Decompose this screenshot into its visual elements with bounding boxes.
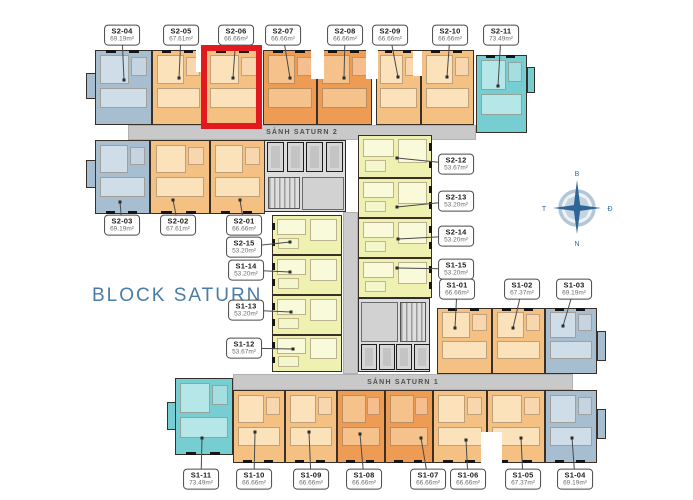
balcony-wall-tick [522, 460, 532, 463]
bathroom-outline [130, 147, 145, 166]
unit-S1-08[interactable] [337, 390, 385, 463]
balcony-wall-tick [429, 242, 432, 249]
balcony-wall-tick [264, 460, 273, 463]
bathroom-outline [455, 57, 469, 76]
bathroom-outline [278, 278, 298, 289]
room-outline [277, 219, 306, 236]
elevator-shaft [379, 344, 395, 370]
unit-area: 69.19m² [110, 36, 134, 44]
unit-area: 69.19m² [562, 290, 586, 298]
room-outline [180, 417, 227, 438]
unit-S1-12[interactable] [272, 335, 342, 372]
unit-area: 53.20m² [444, 270, 468, 278]
unit-code: S2-06 [224, 27, 248, 36]
room-outline [310, 259, 337, 281]
balcony-wall-tick [524, 308, 533, 311]
unit-area: 66.66m² [438, 36, 462, 44]
room-outline [550, 341, 592, 359]
balcony-wall-tick [385, 50, 393, 53]
facade-step [167, 402, 176, 430]
room-outline [363, 139, 393, 157]
bathroom-outline [278, 356, 298, 367]
balcony-wall-tick [486, 55, 495, 58]
balcony-wall-tick [295, 50, 304, 53]
room-outline [342, 427, 381, 447]
unit-area: 66.66m² [224, 36, 248, 44]
room-outline [238, 395, 264, 423]
unit-label-S1-07[interactable]: S1-0766.66m² [410, 469, 446, 490]
unit-area: 67.37m² [511, 480, 535, 488]
staircase [400, 302, 426, 342]
room-outline [550, 312, 576, 338]
room-outline [268, 55, 295, 84]
unit-code: S1-13 [234, 302, 258, 311]
unit-label-S2-13[interactable]: S2-1353.20m² [438, 191, 474, 212]
unit-area: 66.66m² [416, 480, 440, 488]
balcony-wall-tick [429, 202, 432, 209]
core-room [361, 302, 398, 342]
room-outline [157, 55, 184, 84]
elevator-shaft [414, 344, 430, 370]
room-outline [497, 341, 540, 359]
unit-code: S2-15 [232, 239, 256, 248]
room-outline [426, 88, 469, 108]
room-outline [398, 182, 427, 204]
room-outline [277, 299, 306, 316]
unit-code: S1-09 [299, 471, 323, 480]
balcony-wall-tick [272, 342, 275, 348]
balcony-wall-tick [273, 50, 282, 53]
unit-area: 66.66m² [299, 480, 323, 488]
room-outline [438, 395, 465, 423]
room-outline [100, 145, 128, 174]
unit-S2-03[interactable] [95, 140, 150, 214]
unit-area: 53.20m² [234, 311, 258, 319]
unit-label-S1-05[interactable]: S1-0567.37m² [505, 469, 541, 490]
unit-label-S1-09[interactable]: S1-0966.66m² [293, 469, 329, 490]
room-outline [290, 395, 316, 423]
bathroom-outline [131, 57, 146, 76]
balcony-wall-tick [243, 460, 252, 463]
unit-area: 53.20m² [444, 237, 468, 245]
unit-S2-11[interactable] [476, 55, 527, 133]
compass-north-label: B [575, 171, 580, 178]
unit-S1-11[interactable] [175, 378, 233, 455]
unit-area: 73.49m² [189, 480, 213, 488]
facade-notch [481, 432, 502, 464]
room-outline [238, 427, 280, 447]
elevator-shaft [326, 142, 343, 172]
unit-area: 53.20m² [444, 202, 468, 210]
unit-label-S2-11[interactable]: S2-1173.49m² [483, 25, 519, 46]
unit-area: 66.66m² [378, 36, 402, 44]
unit-code: S1-02 [510, 281, 534, 290]
balcony-wall-tick [366, 460, 374, 463]
bathroom-outline [365, 160, 387, 172]
unit-label-S2-02[interactable]: S2-0267.61m² [160, 215, 196, 236]
bathroom-outline [467, 397, 482, 415]
room-outline [390, 427, 429, 447]
unit-code: S2-13 [444, 193, 468, 202]
bathroom-outline [278, 318, 298, 329]
balcony-wall-tick [129, 50, 139, 53]
highlight-box [201, 45, 262, 129]
bathroom-outline [188, 147, 204, 166]
room-outline [277, 259, 306, 276]
room-outline [390, 395, 414, 423]
unit-area: 66.66m² [242, 480, 266, 488]
unit-S2-04[interactable] [95, 50, 152, 125]
balcony-wall-tick [555, 308, 564, 311]
bathroom-outline [365, 241, 387, 252]
unit-S2-01[interactable] [210, 140, 265, 214]
room-outline [442, 341, 487, 359]
unit-area: 66.66m² [271, 36, 295, 44]
unit-label-S1-02[interactable]: S1-0267.37m² [504, 279, 540, 300]
unit-label-S2-01[interactable]: S2-0166.66m² [226, 215, 262, 236]
balcony-wall-tick [272, 239, 275, 246]
bathroom-outline [526, 314, 540, 331]
room-outline [100, 55, 129, 84]
room-outline [290, 427, 332, 447]
unit-S1-01[interactable] [437, 308, 492, 374]
balcony-wall-tick [576, 460, 585, 463]
unit-code: S1-11 [189, 471, 213, 480]
unit-code: S2-03 [110, 217, 134, 226]
balcony-wall-tick [346, 460, 354, 463]
elevator-shaft [361, 344, 377, 370]
unit-label-S1-11[interactable]: S1-1173.49m² [183, 469, 219, 490]
balcony-wall-tick [184, 50, 193, 53]
room-outline [380, 55, 402, 84]
elevator-shaft [287, 142, 304, 172]
elevator-shaft [396, 344, 412, 370]
unit-code: S1-10 [242, 471, 266, 480]
unit-S1-13[interactable] [272, 295, 342, 335]
unit-code: S1-14 [234, 262, 258, 271]
unit-area: 67.61m² [169, 36, 193, 44]
bathroom-outline [245, 147, 260, 166]
bathroom-outline [367, 397, 380, 415]
room-outline [481, 94, 522, 115]
unit-label-S1-13[interactable]: S1-1353.20m² [228, 300, 264, 321]
balcony-wall-tick [429, 226, 432, 233]
unit-S1-09[interactable] [285, 390, 337, 463]
unit-area: 53.20m² [234, 271, 258, 279]
staircase [268, 177, 300, 209]
unit-area: 53.67m² [444, 165, 468, 173]
bathroom-outline [365, 201, 387, 212]
room-outline [268, 88, 312, 108]
unit-S1-04[interactable] [545, 390, 597, 463]
unit-code: S2-09 [378, 27, 402, 36]
room-outline [380, 88, 416, 108]
room-outline [322, 55, 350, 84]
balcony-wall-tick [106, 50, 116, 53]
bathroom-outline [508, 62, 522, 82]
balcony-wall-tick [465, 460, 474, 463]
unit-label-S2-04[interactable]: S2-0469.19m² [104, 25, 140, 46]
unit-code: S2-07 [271, 27, 295, 36]
unit-label-S1-10[interactable]: S1-1066.66m² [236, 469, 272, 490]
unit-code: S1-04 [563, 471, 587, 480]
unit-area: 69.19m² [563, 480, 587, 488]
room-outline [438, 427, 482, 447]
unit-label-S2-08[interactable]: S2-0866.66m² [327, 25, 363, 46]
unit-code: S2-01 [232, 217, 256, 226]
bathroom-outline [297, 57, 312, 76]
core-room [302, 177, 344, 210]
facade-step [86, 73, 96, 99]
unit-label-S1-15[interactable]: S1-1553.20m² [438, 259, 474, 280]
facade-step [597, 409, 606, 439]
balcony-wall-tick [403, 50, 411, 53]
bathroom-outline [352, 57, 367, 76]
unit-code: S1-05 [511, 471, 535, 480]
unit-S1-06[interactable] [433, 390, 487, 463]
balcony-wall-tick [272, 263, 275, 270]
unit-code: S2-12 [444, 156, 468, 165]
bathroom-outline [212, 385, 228, 405]
unit-label-S1-06[interactable]: S1-0666.66m² [450, 469, 486, 490]
room-outline [550, 427, 592, 447]
balcony-wall-tick [502, 308, 511, 311]
unit-code: S1-03 [562, 281, 586, 290]
room-outline [277, 338, 306, 353]
unit-code: S2-11 [489, 27, 513, 36]
unit-area: 66.66m² [333, 36, 357, 44]
unit-label-S2-14[interactable]: S2-1453.20m² [438, 226, 474, 247]
room-outline [481, 60, 506, 90]
room-outline [442, 312, 470, 338]
unit-code: S2-05 [169, 27, 193, 36]
unit-S2-08[interactable] [317, 50, 372, 125]
bathroom-outline [472, 314, 487, 331]
unit-label-S1-01[interactable]: S1-0166.66m² [439, 279, 475, 300]
balcony-wall-tick [448, 308, 458, 311]
unit-S1-15[interactable] [358, 258, 432, 298]
hallway-saturn-1: SẢNH SATURN 1 [233, 374, 573, 390]
unit-label-S2-05[interactable]: S2-0567.61m² [163, 25, 199, 46]
unit-S2-14[interactable] [358, 218, 432, 258]
room-outline [497, 312, 524, 338]
unit-code: S2-04 [110, 27, 134, 36]
room-outline [156, 177, 205, 197]
balcony-wall-tick [243, 211, 253, 214]
balcony-wall-tick [272, 223, 275, 230]
balcony-wall-tick [350, 50, 360, 53]
room-outline [157, 88, 200, 108]
balcony-wall-tick [576, 308, 585, 311]
unit-S2-10[interactable] [421, 50, 474, 125]
bathroom-outline [365, 281, 387, 292]
room-outline [310, 338, 337, 358]
room-outline [100, 88, 146, 108]
unit-area: 67.61m² [166, 226, 190, 234]
unit-label-S1-03[interactable]: S1-0369.19m² [556, 279, 592, 300]
balcony-wall-tick [316, 460, 325, 463]
room-outline [180, 383, 209, 413]
unit-S1-07[interactable] [385, 390, 433, 463]
unit-S2-07[interactable] [263, 50, 317, 125]
room-outline [215, 177, 260, 197]
balcony-wall-tick [186, 452, 196, 455]
room-outline [398, 262, 427, 284]
unit-area: 66.66m² [445, 290, 469, 298]
balcony-wall-tick [429, 186, 432, 193]
balcony-wall-tick [431, 50, 440, 53]
compass-rose: B Đ N T [537, 166, 617, 250]
compass-east-label: Đ [607, 206, 612, 213]
unit-S2-13[interactable] [358, 178, 432, 218]
unit-code: S2-08 [333, 27, 357, 36]
balcony-wall-tick [128, 211, 138, 214]
unit-area: 66.66m² [456, 480, 480, 488]
unit-S2-15[interactable] [272, 215, 342, 255]
unit-S1-02[interactable] [492, 308, 545, 374]
balcony-wall-tick [210, 452, 220, 455]
balcony-wall-tick [272, 303, 275, 310]
room-outline [550, 395, 576, 423]
bathroom-outline [266, 397, 280, 415]
unit-code: S1-08 [352, 471, 376, 480]
unit-code: S2-10 [438, 27, 462, 36]
balcony-wall-tick [453, 50, 462, 53]
room-outline [363, 182, 393, 199]
unit-label-S2-12[interactable]: S2-1253.67m² [438, 154, 474, 175]
unit-S2-02[interactable] [150, 140, 210, 214]
unit-label-S2-09[interactable]: S2-0966.66m² [372, 25, 408, 46]
balcony-wall-tick [414, 460, 422, 463]
elevator-shaft [306, 142, 323, 172]
unit-code: S1-01 [445, 281, 469, 290]
facade-notch [311, 49, 324, 79]
unit-label-S1-14[interactable]: S1-1453.20m² [228, 260, 264, 281]
unit-label-S2-03[interactable]: S2-0369.19m² [104, 215, 140, 236]
balcony-wall-tick [272, 319, 275, 326]
balcony-wall-tick [443, 460, 452, 463]
room-outline [398, 222, 427, 244]
facade-notch [413, 51, 422, 76]
room-outline [322, 88, 367, 108]
balcony-wall-tick [272, 357, 275, 363]
unit-label-S1-08[interactable]: S1-0866.66m² [346, 469, 382, 490]
balcony-wall-tick [161, 211, 171, 214]
unit-label-S2-06[interactable]: S2-0666.66m² [218, 25, 254, 46]
room-outline [363, 262, 393, 279]
room-outline [342, 395, 366, 423]
balcony-wall-tick [328, 50, 338, 53]
bathroom-outline [318, 397, 332, 415]
bathroom-outline [415, 397, 428, 415]
unit-area: 66.66m² [352, 480, 376, 488]
bathroom-outline [524, 397, 540, 415]
facade-step [597, 331, 606, 361]
unit-area: 73.49m² [489, 36, 513, 44]
balcony-wall-tick [221, 211, 231, 214]
balcony-wall-tick [272, 279, 275, 286]
bathroom-outline [278, 238, 298, 249]
unit-code: S1-06 [456, 471, 480, 480]
balcony-wall-tick [106, 211, 116, 214]
room-outline [398, 139, 427, 163]
unit-label-S2-15[interactable]: S2-1553.20m² [226, 237, 262, 258]
unit-code: S1-15 [444, 261, 468, 270]
balcony-wall-tick [295, 460, 304, 463]
room-outline [310, 299, 337, 321]
unit-label-S2-10[interactable]: S2-1066.66m² [432, 25, 468, 46]
balcony-wall-tick [555, 460, 564, 463]
facade-step [86, 160, 96, 188]
unit-code: S1-12 [232, 340, 256, 349]
room-outline [156, 145, 186, 174]
balcony-wall-tick [506, 55, 515, 58]
balcony-wall-tick [429, 266, 432, 273]
floor-plan: BLOCK SATURN B Đ N T SẢNH SATURN 2SẢNH S… [0, 0, 693, 500]
facade-notch [366, 49, 378, 79]
balcony-wall-tick [429, 282, 432, 289]
facade-step [527, 67, 535, 93]
unit-S1-10[interactable] [233, 390, 285, 463]
compass-south-label: N [574, 241, 579, 248]
room-outline [310, 219, 337, 241]
balcony-wall-tick [429, 143, 432, 150]
balcony-wall-tick [394, 460, 402, 463]
unit-code: S2-02 [166, 217, 190, 226]
unit-area: 53.20m² [232, 248, 256, 256]
unit-area: 53.67m² [232, 349, 256, 357]
balcony-wall-tick [186, 211, 196, 214]
unit-S2-12[interactable] [358, 135, 432, 178]
bathroom-outline [578, 397, 592, 415]
unit-code: S2-14 [444, 228, 468, 237]
balcony-wall-tick [162, 50, 171, 53]
unit-label-S1-04[interactable]: S1-0469.19m² [557, 469, 593, 490]
unit-area: 66.66m² [232, 226, 256, 234]
bathroom-outline [578, 314, 592, 331]
unit-area: 69.19m² [110, 226, 134, 234]
room-outline [426, 55, 453, 84]
room-outline [215, 145, 243, 174]
elevator-shaft [267, 142, 284, 172]
room-outline [363, 222, 393, 239]
room-outline [100, 177, 145, 197]
unit-area: 67.37m² [510, 290, 534, 298]
balcony-wall-tick [470, 308, 480, 311]
compass-west-label: T [542, 206, 547, 213]
unit-label-S1-12[interactable]: S1-1253.67m² [226, 338, 262, 359]
unit-code: S1-07 [416, 471, 440, 480]
balcony-wall-tick [429, 161, 432, 168]
unit-S1-14[interactable] [272, 255, 342, 295]
room-outline [492, 395, 521, 423]
central-corridor [343, 212, 358, 374]
unit-label-S2-07[interactable]: S2-0766.66m² [265, 25, 301, 46]
unit-S1-03[interactable] [545, 308, 597, 374]
